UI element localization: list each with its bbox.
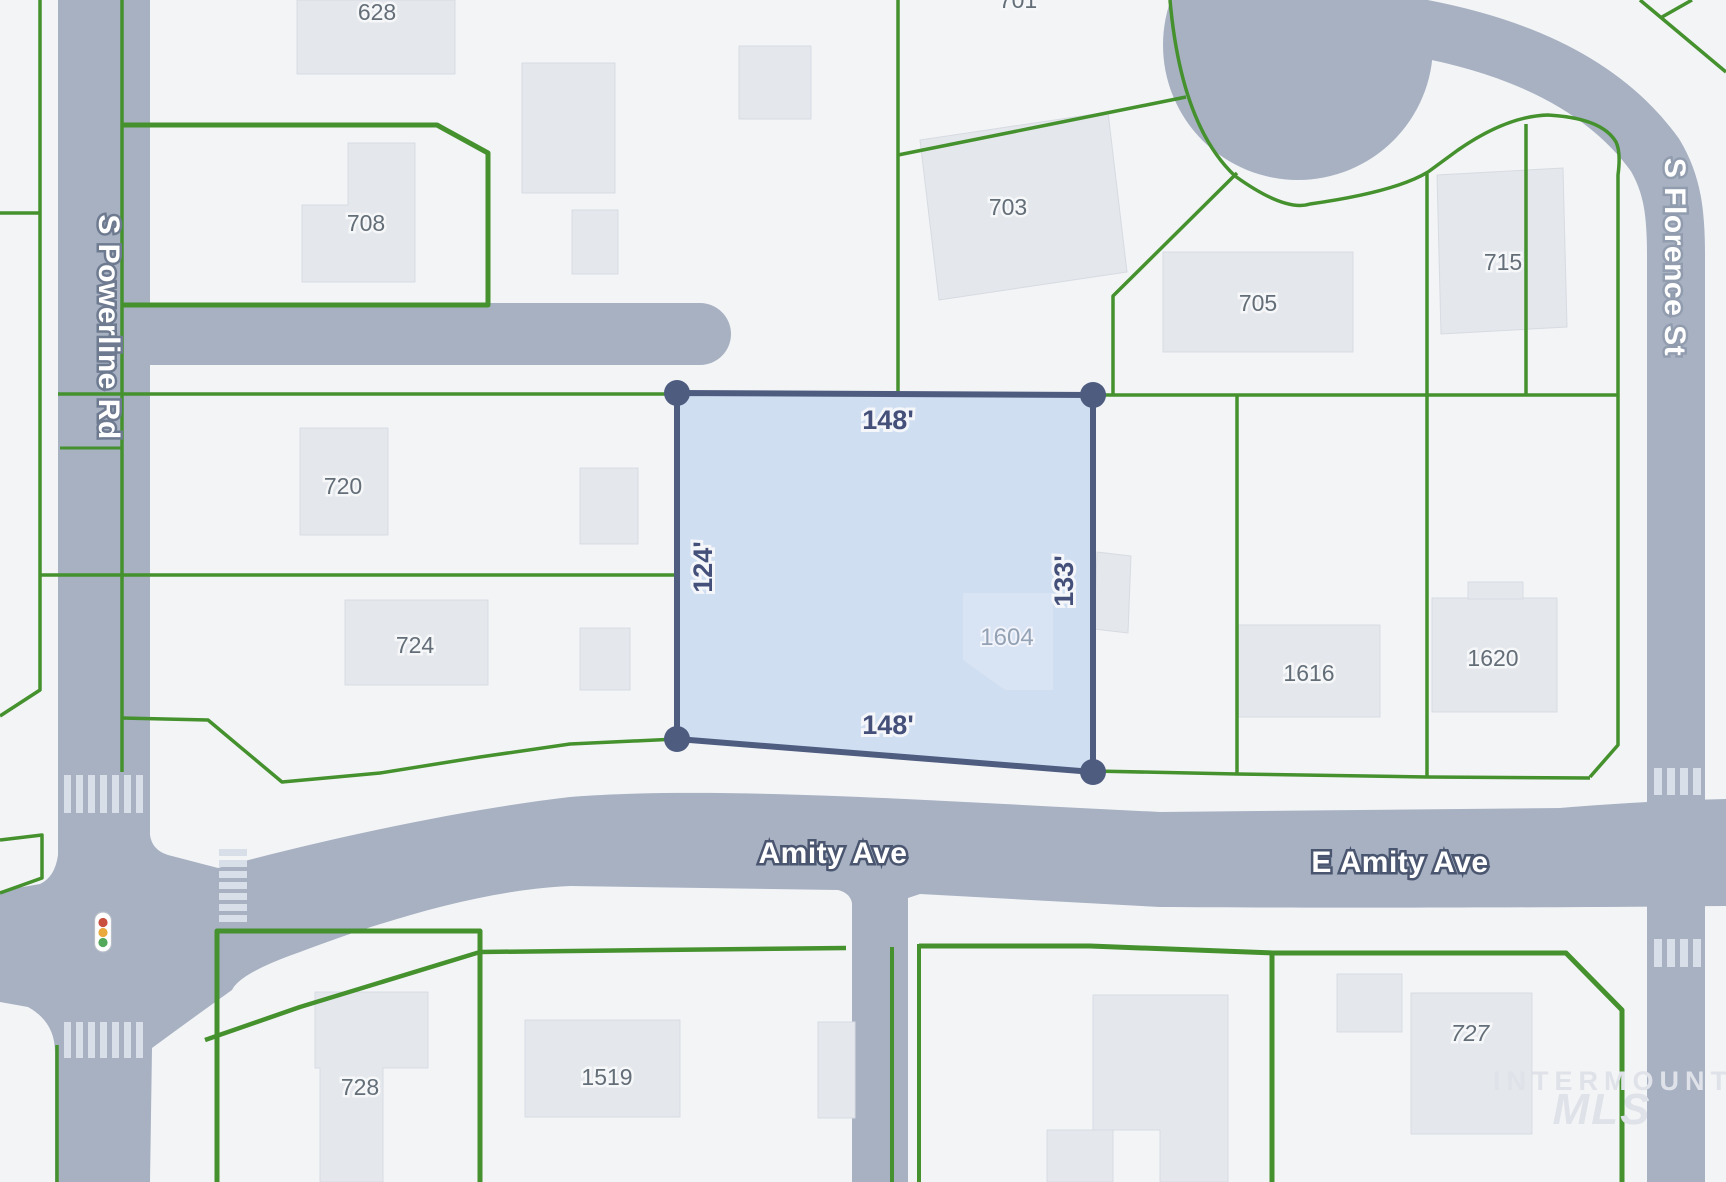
crosswalk-bar — [124, 1022, 131, 1058]
crosswalk-bar — [64, 775, 71, 813]
building-1620-wing — [1468, 582, 1523, 599]
crosswalk-bar — [219, 860, 247, 867]
crosswalk-bar — [100, 775, 107, 813]
parcel-number: 703 — [989, 194, 1027, 220]
parcel-number: 705 — [1239, 290, 1277, 316]
parcel-number: 727 — [1451, 1020, 1491, 1046]
crosswalk-bar — [1680, 939, 1688, 967]
dim-label-left: 124' — [688, 541, 718, 592]
parcel-number: 728 — [341, 1074, 379, 1100]
parcel-number: 724 — [396, 632, 435, 658]
crosswalk-bar — [88, 1022, 95, 1058]
crosswalk-bar — [1693, 768, 1701, 795]
crosswalk-bar — [1680, 768, 1688, 795]
parcel-vertex-handle[interactable] — [664, 380, 690, 406]
crosswalk-bar — [136, 1022, 143, 1058]
building — [1094, 552, 1131, 633]
map-canvas[interactable]: 148'124'133'148'628701708703705715720724… — [0, 0, 1726, 1182]
parcel-number: 701 — [999, 0, 1037, 13]
traffic-light-yellow — [98, 928, 107, 937]
crosswalk-bar — [219, 915, 247, 922]
crosswalk-bar — [124, 775, 131, 813]
building — [522, 63, 615, 193]
building — [580, 468, 638, 544]
parcel-number: 1620 — [1467, 645, 1518, 671]
parcel-vertex-handle[interactable] — [664, 726, 690, 752]
street-label-powerline: S Powerline Rd — [92, 214, 125, 439]
parcel-number: 720 — [324, 473, 362, 499]
traffic-light-red — [98, 918, 107, 927]
crosswalk-bar — [1654, 939, 1662, 967]
crosswalk-bar — [219, 871, 247, 878]
crosswalk-bar — [219, 893, 247, 900]
crosswalk-bar — [1654, 768, 1662, 795]
parcel-number: 1519 — [581, 1064, 632, 1090]
building-727 — [1411, 993, 1532, 1134]
building — [739, 46, 811, 119]
street-label-e-amity: E Amity Ave — [1311, 846, 1488, 879]
crosswalk-bar — [136, 775, 143, 813]
crosswalk-bar — [219, 904, 247, 911]
parcel-number: 1604 — [980, 624, 1033, 651]
map-svg: 148'124'133'148'628701708703705715720724… — [0, 0, 1726, 1182]
crosswalk-bar — [76, 775, 83, 813]
crosswalk-bar — [112, 775, 119, 813]
crosswalk-bar — [76, 1022, 83, 1058]
crosswalk-bar — [1667, 768, 1675, 795]
parcel-number: 708 — [347, 210, 385, 236]
building — [1337, 974, 1402, 1032]
dim-label-right: 133' — [1049, 555, 1079, 606]
building — [1047, 1130, 1113, 1182]
crosswalk-bar — [219, 882, 247, 889]
traffic-light-green — [98, 938, 107, 947]
crosswalk-bar — [100, 1022, 107, 1058]
dim-label-top: 148' — [862, 405, 913, 435]
crosswalk-bar — [1667, 939, 1675, 967]
street-label-florence: S Florence St — [1658, 158, 1691, 356]
building — [818, 1022, 855, 1118]
parcel-vertex-handle[interactable] — [1080, 759, 1106, 785]
building — [580, 628, 630, 690]
dim-label-bottom: 148' — [862, 710, 913, 740]
crosswalk-bar — [64, 1022, 71, 1058]
crosswalk-bar — [1693, 939, 1701, 967]
parcel-vertex-handle[interactable] — [1080, 382, 1106, 408]
crosswalk-bar — [112, 1022, 119, 1058]
parcel-number: 1616 — [1283, 660, 1334, 686]
building — [572, 210, 618, 274]
watermark-mls: MLS — [1553, 1085, 1652, 1134]
crosswalk-bar — [219, 849, 247, 856]
crosswalk-bar — [88, 775, 95, 813]
street-label-amity: Amity Ave — [759, 837, 908, 870]
traffic-signal — [95, 912, 112, 952]
parcel-number: 628 — [358, 0, 396, 25]
road-stub-east — [125, 303, 731, 365]
parcel-number: 715 — [1484, 249, 1522, 275]
